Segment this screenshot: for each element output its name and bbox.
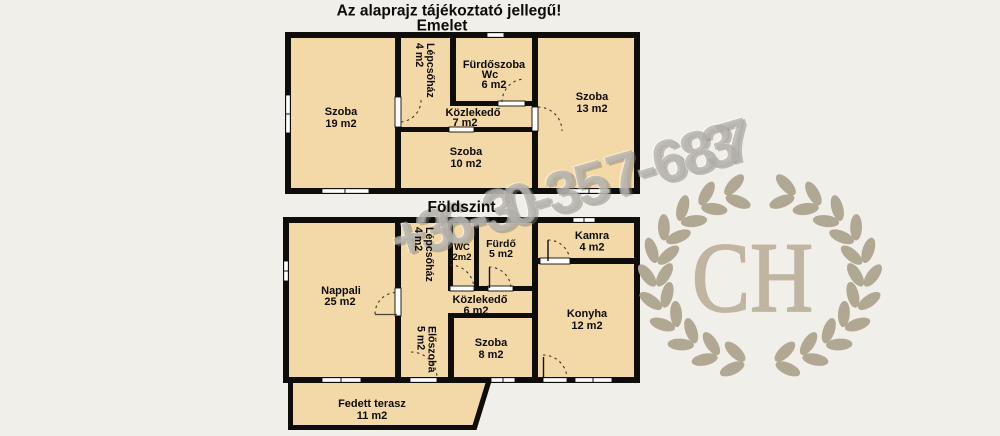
svg-text:5 m2: 5 m2 (415, 326, 427, 350)
svg-text:Szoba: Szoba (576, 91, 609, 103)
svg-text:4 m2: 4 m2 (412, 227, 424, 251)
svg-text:4 m2: 4 m2 (413, 43, 425, 67)
svg-text:8 m2: 8 m2 (478, 349, 503, 361)
svg-text:Szoba: Szoba (325, 106, 358, 118)
svg-text:Emelet: Emelet (417, 18, 468, 35)
svg-text:5 m2: 5 m2 (489, 248, 513, 260)
svg-text:7 m2: 7 m2 (452, 117, 477, 129)
svg-text:Fedett terasz: Fedett terasz (338, 398, 406, 410)
svg-text:6 m2: 6 m2 (463, 305, 488, 317)
svg-text:CH: CH (692, 222, 813, 333)
svg-text:Földszint: Földszint (427, 199, 495, 216)
svg-text:13 m2: 13 m2 (576, 103, 607, 115)
svg-text:Konyha: Konyha (567, 308, 608, 320)
svg-text:12 m2: 12 m2 (571, 320, 602, 332)
svg-text:4 m2: 4 m2 (579, 242, 604, 254)
svg-text:Szoba: Szoba (475, 337, 508, 349)
svg-text:Szoba: Szoba (450, 146, 483, 158)
svg-text:11 m2: 11 m2 (357, 410, 388, 422)
svg-text:Kamra: Kamra (575, 230, 610, 242)
svg-text:19 m2: 19 m2 (325, 118, 356, 130)
svg-text:25 m2: 25 m2 (324, 296, 355, 308)
svg-text:10 m2: 10 m2 (450, 158, 481, 170)
svg-text:6 m2: 6 m2 (481, 79, 506, 91)
svg-text:2m2: 2m2 (452, 252, 471, 263)
